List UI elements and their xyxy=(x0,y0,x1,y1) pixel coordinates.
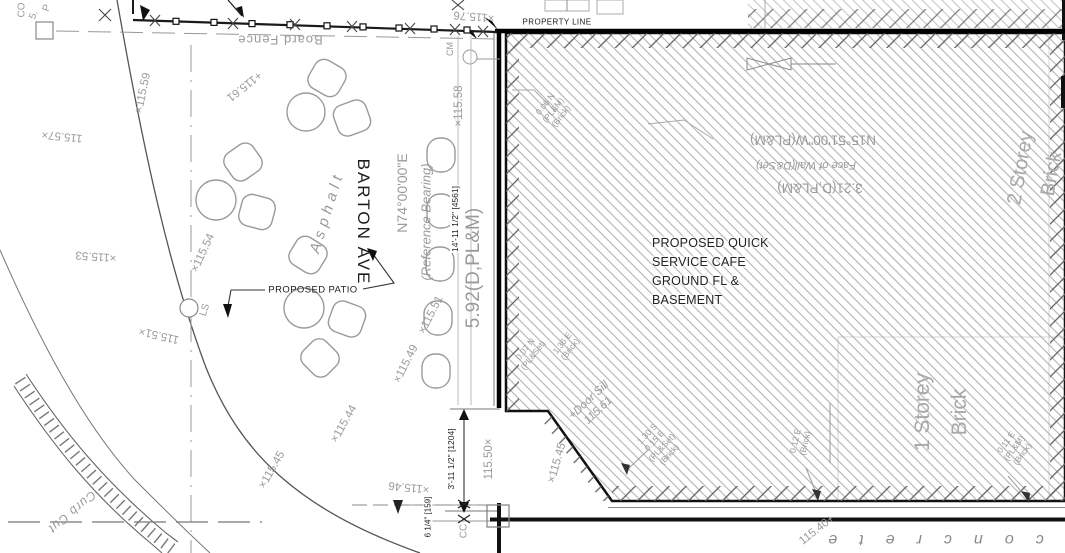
building-use-line: GROUND FL & xyxy=(652,272,769,291)
board-fence-label: Board Fence xyxy=(237,33,322,48)
cm-marker-label: CM xyxy=(445,42,455,56)
storey1-line2: Brick xyxy=(948,389,972,436)
proposed-patio-label: PROPOSED PATIO xyxy=(268,285,357,296)
north-wall-face-note: Face of Wall(D&Set) xyxy=(756,159,856,171)
north-wall-bearing: N15°51'00"W(PL&M) xyxy=(750,133,876,148)
cc-marker-label: CC xyxy=(459,524,470,538)
board-fence xyxy=(99,0,497,37)
street-name-label: BARTON AVE xyxy=(353,159,373,286)
storey1-line1: 1 Storey xyxy=(911,373,935,451)
north-wall-length: 3.21(D,PL&M) xyxy=(777,181,863,196)
building-use-label: PROPOSED QUICK SERVICE CAFE GROUND FL & … xyxy=(652,234,769,310)
reference-bearing-note: (Reference Bearing) xyxy=(419,163,434,280)
property-line-label: PROPERTY LINE xyxy=(523,18,592,27)
building-use-line: SERVICE CAFE xyxy=(652,253,769,272)
building-use-line: BASEMENT xyxy=(652,291,769,310)
west-wall-dim-metric: 5.92(D,PL&M) xyxy=(463,208,485,328)
siteplan-linework xyxy=(0,0,1065,553)
patio-dim-imperial: 3'-11 1/2" [1204] xyxy=(446,427,456,490)
corner-partial-label: CO xyxy=(17,3,28,18)
site-plan-drawing: BARTON AVE N74°00'00"E (Reference Bearin… xyxy=(0,0,1065,553)
building-footprint-hatch xyxy=(506,33,1065,501)
spot-elevation: 115.50× xyxy=(483,438,495,479)
spot-elevation: ×115.58 xyxy=(453,85,465,126)
concrete-surface-label: concrete xyxy=(806,530,1043,548)
reference-bearing-label: N74°00'00"E xyxy=(394,153,410,232)
sill-offset-dim: 6 1/4" [159] xyxy=(424,496,433,539)
west-wall-dim-imperial: 14'-11 1/2" [4561] xyxy=(450,185,460,253)
building-use-line: PROPOSED QUICK xyxy=(652,234,769,253)
